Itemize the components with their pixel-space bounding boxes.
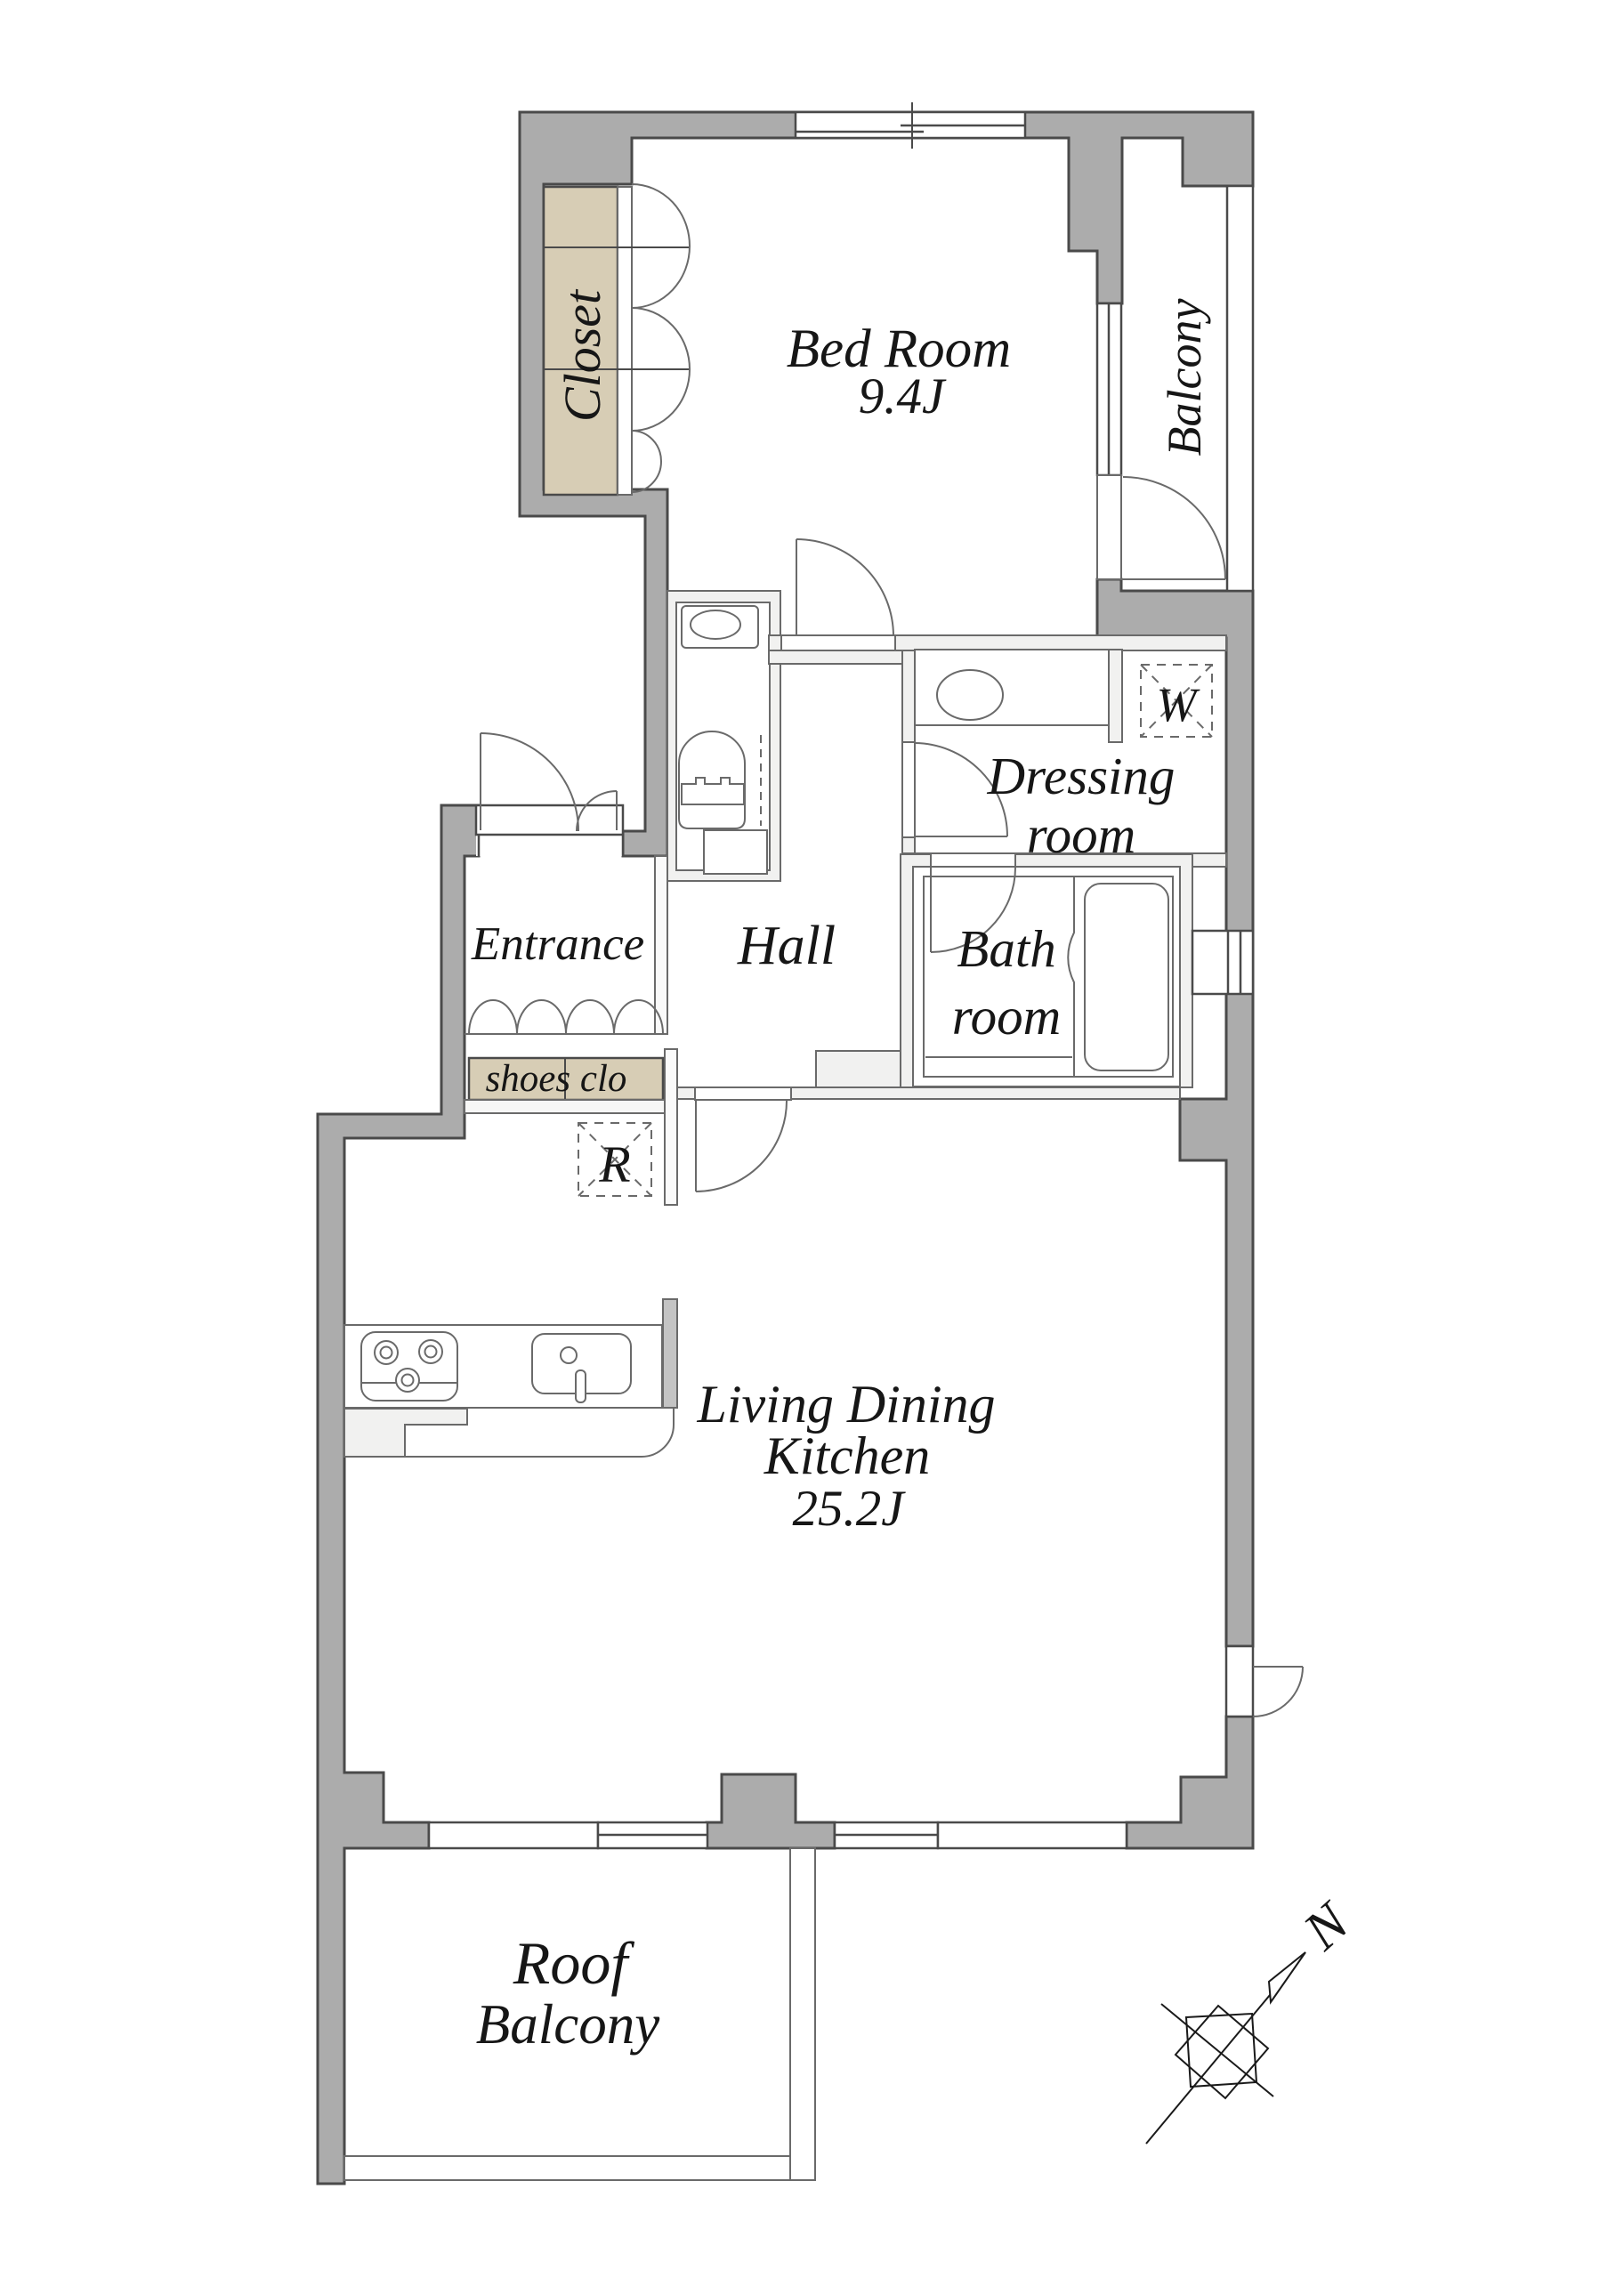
svg-text:W: W <box>1157 678 1201 731</box>
svg-text:room: room <box>1027 805 1135 864</box>
svg-text:shoes clo: shoes clo <box>486 1058 627 1100</box>
svg-text:25.2J: 25.2J <box>792 1481 906 1537</box>
svg-text:room: room <box>952 987 1061 1046</box>
svg-text:Dressing: Dressing <box>987 747 1176 805</box>
svg-text:Balcony: Balcony <box>1158 299 1211 456</box>
svg-text:Closet: Closet <box>553 288 611 422</box>
svg-text:Hall: Hall <box>737 916 836 976</box>
svg-text:Balcony: Balcony <box>476 1993 659 2056</box>
svg-text:R: R <box>598 1135 630 1193</box>
svg-text:Entrance: Entrance <box>471 918 644 970</box>
svg-text:Roof: Roof <box>513 1929 635 1997</box>
svg-text:Living Dining: Living Dining <box>696 1375 995 1434</box>
svg-text:Bath: Bath <box>957 919 1055 978</box>
svg-text:9.4J: 9.4J <box>859 368 947 424</box>
svg-text:Kitchen: Kitchen <box>764 1426 931 1485</box>
